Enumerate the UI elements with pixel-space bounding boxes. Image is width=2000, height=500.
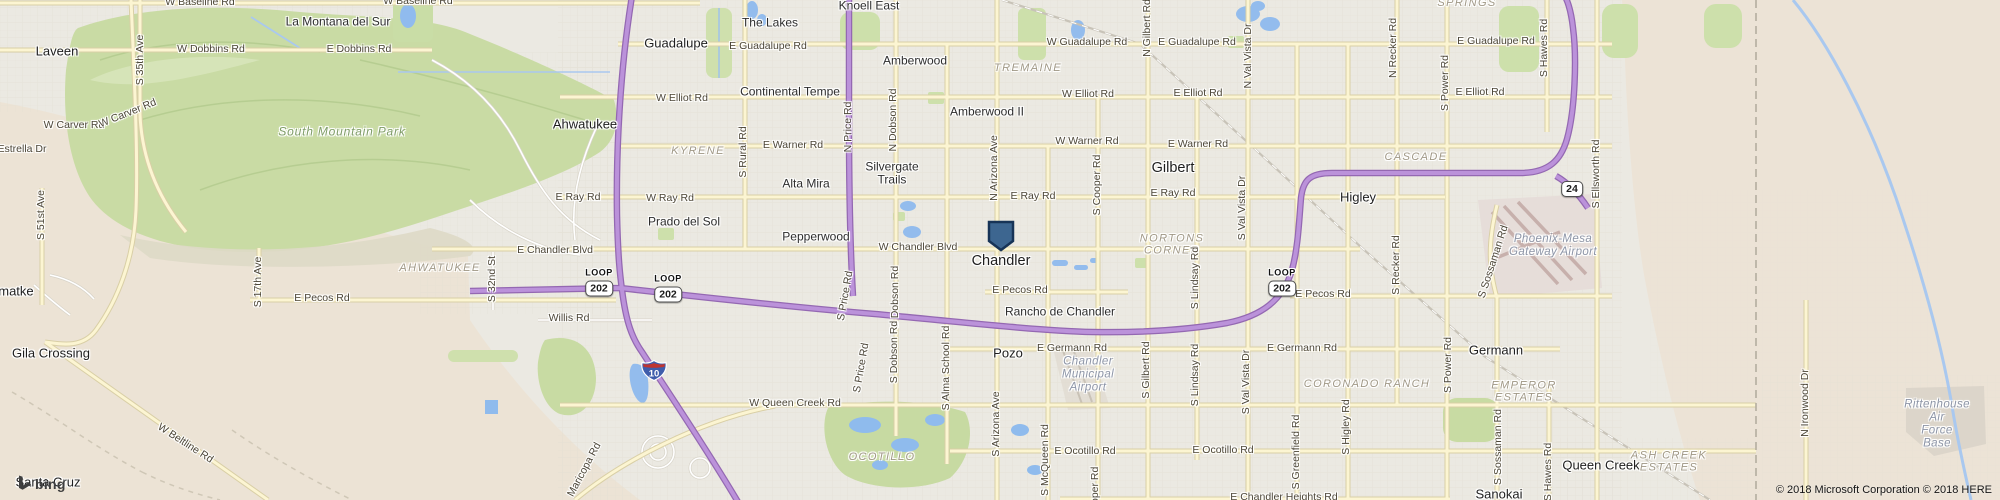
- road-label: E Guadalupe Rd: [729, 41, 807, 53]
- road-label: S Price Rd: [836, 270, 856, 321]
- district-label: TREMAINE: [994, 62, 1062, 74]
- road-label: E Ray Rd: [1011, 191, 1056, 203]
- city-label: Komatke: [0, 285, 34, 300]
- svg-text:10: 10: [649, 369, 660, 380]
- map-attribution: © 2018 Microsoft Corporation © 2018 HERE: [1776, 484, 1992, 496]
- road-label: S Sossaman Rd: [1477, 224, 1512, 300]
- neighborhood-label: The Lakes: [742, 16, 798, 29]
- neighborhood-label: Continental Tempe: [740, 85, 840, 98]
- road-label: W Chandler Blvd: [879, 242, 958, 254]
- road-label: E Chandler Heights Rd: [1230, 492, 1337, 500]
- road-label: E Dobbins Rd: [327, 44, 392, 56]
- road-label: S Lindsay Rd: [1190, 344, 1202, 406]
- city-label: Pozo: [993, 347, 1023, 362]
- road-label: S Cooper Rd: [1092, 155, 1104, 216]
- airport-label: Rittenhouse Air Force Base: [1904, 398, 1970, 450]
- road-label: E Ray Rd: [1151, 188, 1196, 200]
- road-label: S McQueen Rd: [1040, 424, 1052, 496]
- city-label: Gilbert: [1152, 160, 1195, 176]
- road-label: E Germann Rd: [1267, 343, 1337, 355]
- road-label: E Ocotillo Rd: [1054, 446, 1115, 458]
- district-label: NORTONS CORNER: [1140, 233, 1204, 258]
- city-label: Higley: [1340, 191, 1376, 206]
- city-label: Gila Crossing: [12, 347, 90, 362]
- road-label: E Warner Rd: [763, 140, 823, 152]
- route-shield-loop-202: LOOP202: [585, 268, 613, 297]
- road-label: N Dobson Rd: [888, 88, 900, 151]
- road-label: W Elliot Rd: [656, 93, 708, 105]
- district-label: KYRENE: [671, 145, 725, 157]
- road-label: W Beltline Rd: [155, 422, 215, 466]
- road-label: S Arizona Ave: [991, 391, 1003, 456]
- road-label: N Price Rd: [843, 102, 855, 153]
- bing-logo[interactable]: bing: [16, 475, 66, 492]
- neighborhood-label: Pepperwood: [782, 230, 849, 243]
- road-label: S Power Rd: [1440, 55, 1452, 111]
- map-pin[interactable]: [987, 220, 1015, 252]
- road-label: S Rural Rd: [738, 126, 750, 177]
- road-label: W Queen Creek Rd: [749, 398, 841, 410]
- loop-word: LOOP: [585, 268, 613, 278]
- road-label: W Baseline Rd: [165, 0, 234, 9]
- route-shield-i-10: 10: [641, 359, 667, 388]
- road-label: W Warner Rd: [1055, 136, 1118, 148]
- road-label: S Val Vista Dr: [1237, 176, 1249, 240]
- road-label: S Price Rd: [852, 342, 872, 393]
- road-label: N Recker Rd: [1388, 18, 1400, 78]
- road-label: N Gilbert Rd: [1142, 0, 1154, 57]
- road-label: E Chandler Blvd: [517, 245, 593, 257]
- route-shield-loop-202: LOOP202: [1268, 268, 1296, 297]
- road-label: S Higley Rd: [1341, 399, 1353, 454]
- road-label: S 17th Ave: [253, 257, 265, 308]
- loop-number: 202: [585, 281, 613, 297]
- neighborhood-label: La Montana del Sur: [286, 15, 391, 28]
- road-label: E Warner Rd: [1168, 139, 1228, 151]
- road-label: S Cooper Rd: [1090, 467, 1102, 500]
- district-label: CORONADO RANCH: [1304, 378, 1431, 390]
- route-shield-sr-24: 24: [1561, 179, 1583, 197]
- map-pin-icon: [987, 220, 1015, 252]
- road-label: E Guadalupe Rd: [1158, 37, 1236, 49]
- road-label: W Dobbins Rd: [177, 44, 245, 56]
- district-label: AHWATUKEE: [399, 262, 480, 274]
- neighborhood-label: Knoell East: [839, 0, 900, 13]
- road-label: S Alma School Rd: [941, 326, 953, 411]
- road-label: S 51st Ave: [36, 190, 48, 240]
- road-label: E Pecos Rd: [294, 293, 349, 305]
- road-label: Estrella Dr: [0, 144, 47, 156]
- road-label: S Dobson Rd: [889, 321, 901, 383]
- road-label: W Baseline Rd: [383, 0, 452, 8]
- neighborhood-label: Amberwood: [883, 54, 947, 67]
- park-label: South Mountain Park: [278, 125, 405, 138]
- road-label: S Gilbert Rd: [1141, 341, 1153, 398]
- district-label: SPRINGS: [1437, 0, 1496, 9]
- district-label: OCOTILLO: [849, 451, 916, 463]
- road-label: S Power Rd: [1443, 337, 1455, 393]
- road-label: W Carver Rd: [44, 120, 105, 132]
- road-label: W Guadalupe Rd: [1047, 37, 1128, 49]
- road-label: W Ray Rd: [646, 193, 694, 205]
- airport-label: Phoenix-Mesa Gateway Airport: [1509, 233, 1597, 259]
- road-label: N Val Vista Dr: [1243, 24, 1255, 89]
- road-label: S Val Vista Dr: [1241, 350, 1253, 414]
- route-shield-loop-202: LOOP202: [654, 274, 682, 303]
- city-label: Ahwatukee: [553, 118, 617, 133]
- road-label: E Germann Rd: [1037, 343, 1107, 355]
- loop-number: 202: [654, 287, 682, 303]
- road-label: S 32nd St: [487, 256, 499, 302]
- neighborhood-label: Silvergate Trails: [865, 161, 918, 188]
- road-label: S Dobson Rd: [890, 266, 902, 328]
- road-label: E Ray Rd: [556, 192, 601, 204]
- road-label: N Ironwood Dr: [1800, 369, 1812, 437]
- road-label: S Sossaman Rd: [1493, 409, 1505, 485]
- loop-word: LOOP: [1268, 268, 1296, 278]
- district-label: ASH CREEK ESTATES: [1631, 450, 1707, 475]
- city-label: Queen Creek: [1562, 459, 1639, 474]
- road-label: W Elliot Rd: [1062, 89, 1114, 101]
- road-label: S Lindsay Rd: [1190, 247, 1202, 309]
- road-label: E Elliot Rd: [1173, 88, 1222, 100]
- road-label: S Ellsworth Rd: [1591, 140, 1603, 209]
- road-label: N Arizona Ave: [989, 135, 1001, 201]
- city-label: Laveen: [36, 45, 79, 60]
- bing-logo-text: bing: [35, 476, 66, 492]
- city-label: Guadalupe: [644, 37, 708, 52]
- road-label: S Recker Rd: [1391, 235, 1403, 295]
- road-label: E Guadalupe Rd: [1457, 36, 1535, 48]
- city-label: Chandler: [972, 253, 1031, 269]
- neighborhood-label: Rancho de Chandler: [1005, 305, 1115, 318]
- neighborhood-label: Prado del Sol: [648, 215, 720, 228]
- road-label: E Elliot Rd: [1455, 87, 1504, 99]
- road-label: S Hawes Rd: [1539, 19, 1551, 77]
- road-label: Willis Rd: [549, 313, 590, 325]
- road-label: S 35th Ave: [135, 35, 147, 86]
- road-label: S Hawes Rd: [1543, 443, 1555, 500]
- road-label: Maricopa Rd: [566, 441, 604, 499]
- district-label: CASCADE: [1385, 151, 1448, 163]
- district-label: EMPEROR ESTATES: [1491, 380, 1556, 405]
- road-label: E Pecos Rd: [992, 285, 1047, 297]
- road-label: E Ocotillo Rd: [1192, 445, 1253, 457]
- bing-logo-icon: [16, 475, 33, 492]
- airport-label: Chandler Municipal Airport: [1062, 356, 1114, 395]
- loop-word: LOOP: [654, 274, 682, 284]
- road-label: E Pecos Rd: [1295, 289, 1350, 301]
- neighborhood-label: Amberwood II: [950, 105, 1024, 118]
- city-label: Germann: [1469, 344, 1523, 359]
- neighborhood-label: Alta Mira: [782, 177, 829, 190]
- loop-number: 202: [1268, 281, 1296, 297]
- road-label: W Carver Rd: [98, 97, 159, 131]
- route-number: 24: [1561, 181, 1583, 197]
- map-root[interactable]: ChandlerGilbertLaveenGuadalupeAhwatukeeH…: [0, 0, 2000, 500]
- road-label: S Greenfield Rd: [1291, 415, 1303, 490]
- city-label: Sanokai: [1476, 488, 1523, 500]
